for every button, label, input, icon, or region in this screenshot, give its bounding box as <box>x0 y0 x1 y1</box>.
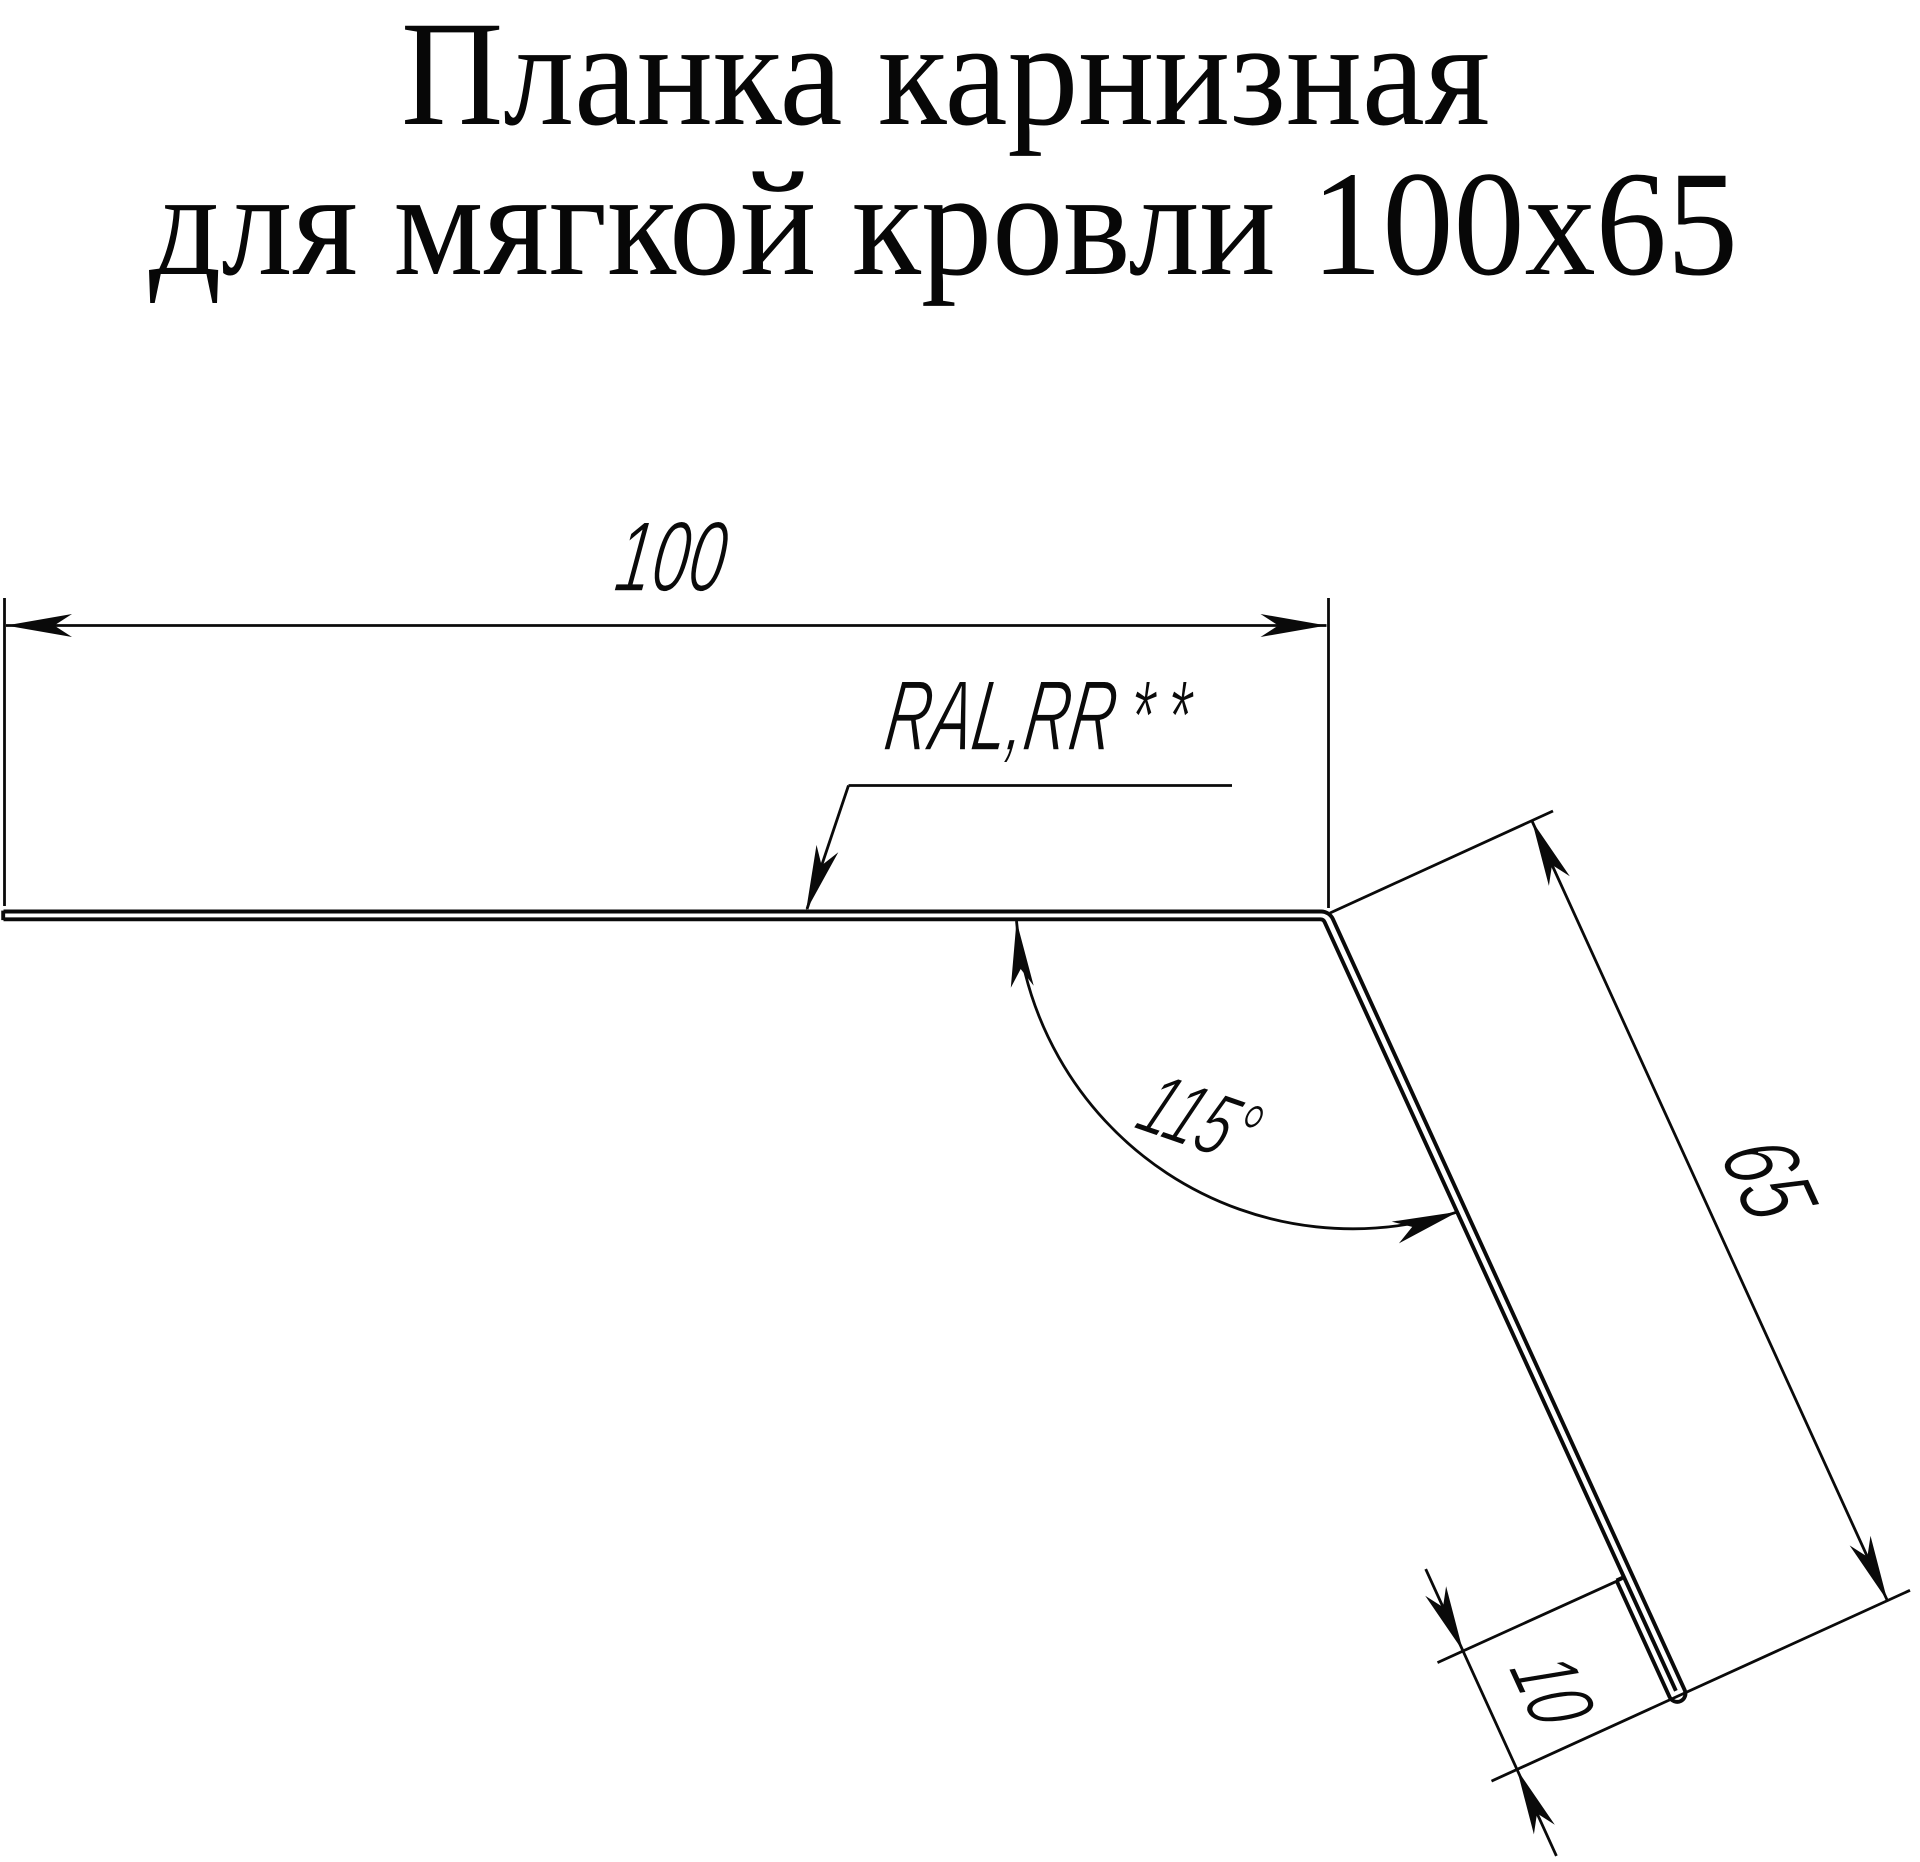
svg-text:100: 100 <box>609 502 734 614</box>
svg-text:115°: 115° <box>1123 1055 1277 1181</box>
svg-text:10: 10 <box>1489 1644 1617 1736</box>
svg-text:RAL,RR * *: RAL,RR * * <box>879 659 1199 771</box>
svg-text:Планка карнизная: Планка карнизная <box>401 0 1490 157</box>
svg-text:65: 65 <box>1697 1126 1842 1231</box>
svg-text:для мягкой кровли 100х65: для мягкой кровли 100х65 <box>149 141 1738 307</box>
